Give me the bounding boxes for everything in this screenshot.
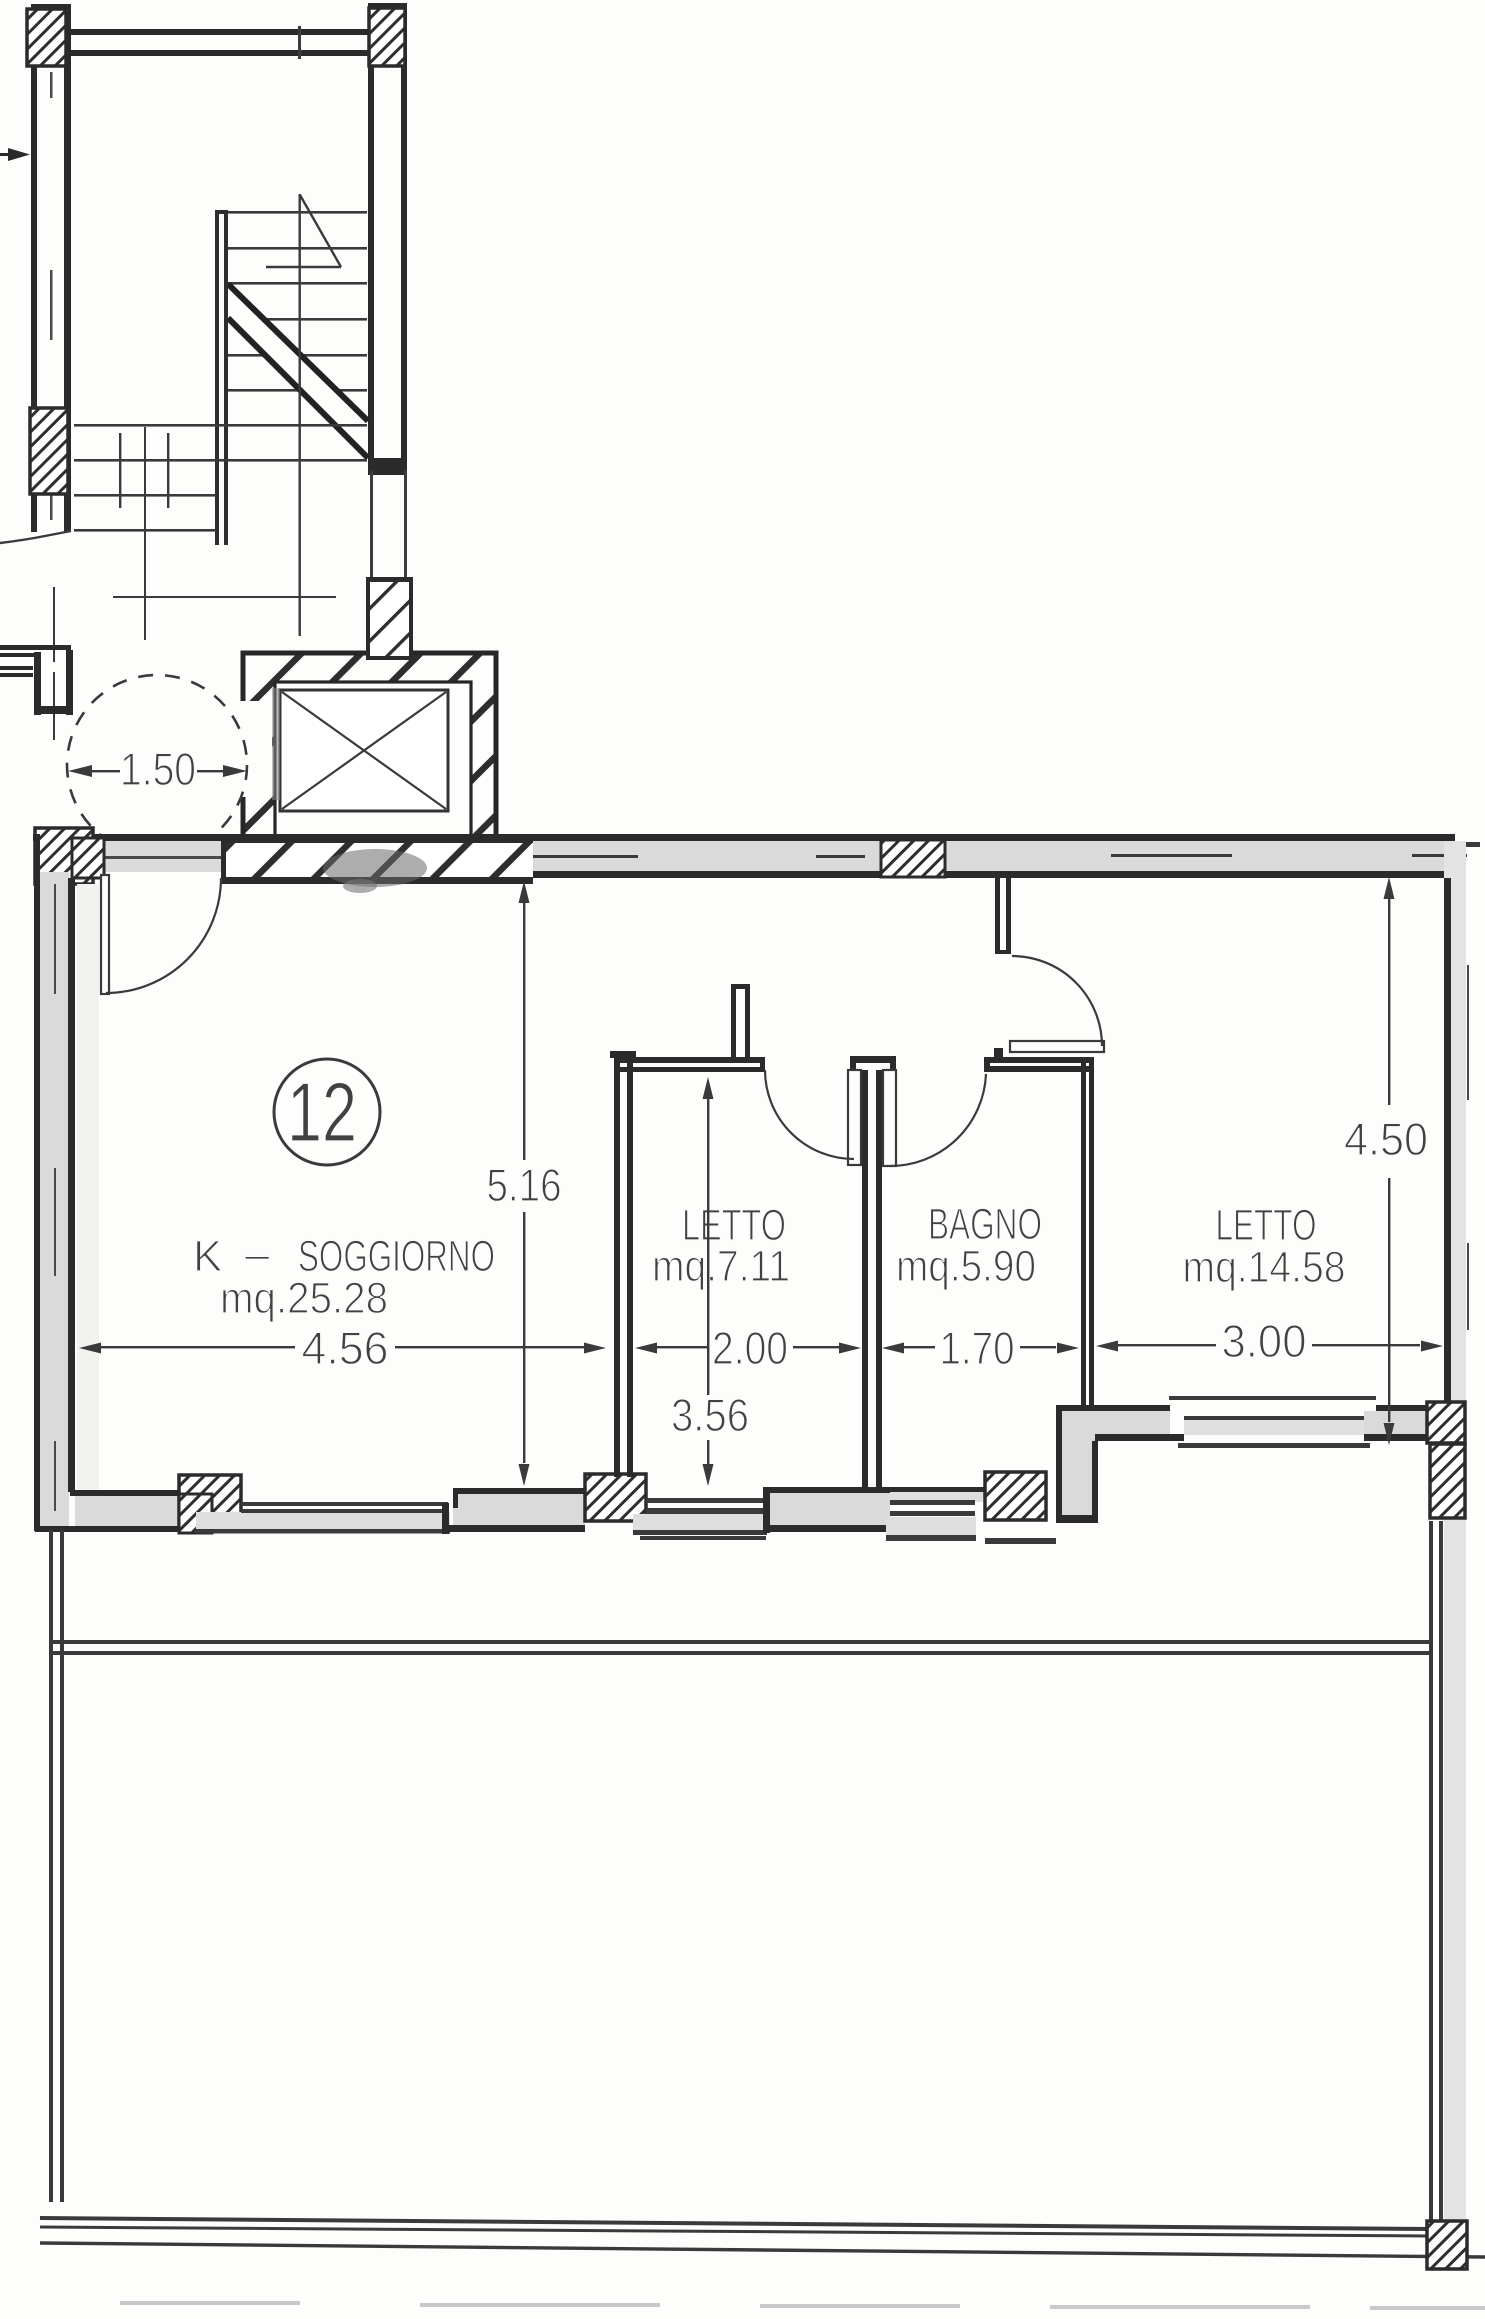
svg-text:5.16: 5.16 [487,1159,562,1211]
svg-text:mq.25.28: mq.25.28 [220,1274,388,1323]
svg-text:12: 12 [287,1065,357,1159]
svg-text:mq.5.90: mq.5.90 [896,1242,1036,1291]
svg-text:mq.14.58: mq.14.58 [1183,1243,1346,1292]
svg-text:3.56: 3.56 [671,1389,749,1441]
svg-text:3.00: 3.00 [1222,1315,1307,1367]
svg-text:4.50: 4.50 [1344,1113,1428,1165]
svg-text:1.50: 1.50 [120,743,196,795]
svg-text:4.56: 4.56 [302,1322,389,1374]
svg-text:–: – [245,1230,270,1279]
svg-text:1.70: 1.70 [940,1322,1015,1374]
svg-text:mq.7.11: mq.7.11 [652,1242,790,1291]
svg-text:K: K [193,1232,222,1281]
svg-text:2.00: 2.00 [712,1322,788,1374]
